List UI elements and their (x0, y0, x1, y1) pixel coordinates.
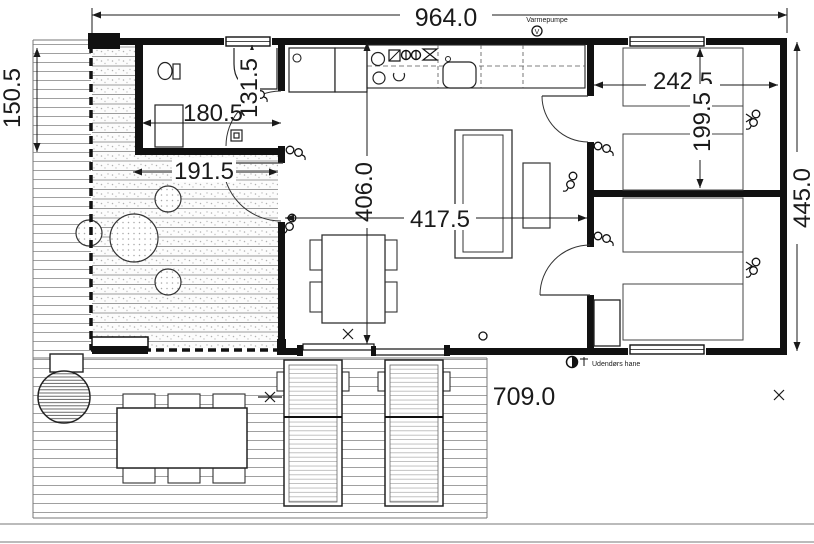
lounger1-tab-right (342, 372, 349, 391)
wall-bedroom-divider-upper (587, 45, 594, 96)
sliding-door-jamb-mid (371, 346, 376, 356)
dim-bedroom-height: 199.5 (689, 92, 716, 152)
terrace-plant-large (110, 214, 158, 262)
wall-bedroom-divider-lower (587, 295, 594, 348)
terrace-plant-top (155, 186, 181, 212)
kitchen (289, 45, 585, 92)
dim-left-height: 150.5 (0, 68, 26, 128)
outdoor-storage-box (50, 354, 83, 372)
dim-living-height: 406.0 (351, 162, 378, 222)
sun-lounger-1-slats (289, 365, 337, 502)
outlet-bedroom1-door (594, 142, 613, 156)
lamp-outlet-symbol (423, 49, 437, 60)
cooktop-burner-3 (393, 73, 404, 81)
outlet-bedroom2-right (746, 258, 760, 277)
patio-chair-top-1 (123, 394, 155, 409)
lounger2-tab-right (443, 372, 450, 391)
left-deck-strip (33, 40, 91, 352)
dining-chair-left-1 (310, 240, 322, 270)
bedroom1-door-arc (542, 96, 588, 142)
outlet-bedroom1-right (746, 110, 760, 129)
lounger2-tab-left (378, 372, 385, 391)
dim-terrace-width: 191.5 (174, 158, 234, 185)
dining-chair-right-2 (385, 282, 397, 312)
wall-right (780, 45, 787, 355)
fire-pit (38, 371, 90, 423)
sink-faucet (446, 57, 451, 62)
cooktop-burner-1 (372, 53, 385, 66)
dim-right-height: 445.0 (789, 168, 814, 228)
bedroom2-closet (594, 300, 620, 346)
lounger1-tab-left (277, 372, 284, 391)
patio-table (117, 408, 247, 468)
patio-chair-bottom-3 (213, 468, 245, 483)
dim-deck-width: 709.0 (493, 383, 556, 411)
dining-chair-left-2 (310, 282, 322, 312)
wall-bathroom-left (135, 45, 143, 155)
terrace-bench-base (92, 346, 148, 354)
heat-pump-label: Varmepumpe (526, 17, 568, 24)
wall-entry-upper (278, 45, 285, 91)
dim-bathroom-width: 180.5 (183, 100, 243, 127)
dining-chair-right-1 (385, 240, 397, 270)
kitchen-tall-unit-2 (335, 48, 367, 92)
sliding-door-jamb-left (297, 345, 303, 356)
outlet-living-bottom (479, 332, 487, 340)
outdoor-tap-label: Udendørs hane (592, 361, 640, 368)
sliding-door-panel-1 (303, 344, 374, 350)
sliding-door-panel-2 (375, 349, 445, 355)
floor-plan-canvas: 964.0 150.5 131.5 180.5 191.5 406.0 417.… (0, 0, 814, 544)
bed2-mattress-bottom (623, 284, 743, 340)
sun-lounger-2-slats (390, 365, 438, 502)
dim-living-width: 417.5 (410, 206, 470, 233)
tap-glyph (580, 357, 588, 366)
bed2-mattress-top (623, 198, 743, 252)
terrace-plant-left (76, 220, 102, 246)
wall-bathroom-bottom (135, 148, 285, 155)
outlet-entry (286, 146, 305, 160)
bedroom2-door-arc (540, 245, 590, 295)
wall-bedroom-divider-mid (587, 142, 594, 247)
cooktop-burner-2 (373, 72, 385, 84)
sofa-cushions (463, 135, 503, 252)
patio-chair-bottom-1 (123, 468, 155, 483)
wall-between-bedrooms (594, 190, 780, 197)
bed1-mattress-bottom (623, 134, 743, 190)
floor-plan-drawing: 964.0 150.5 131.5 180.5 191.5 406.0 417.… (0, 0, 814, 544)
patio-chair-top-3 (213, 394, 245, 409)
dining-table (322, 235, 385, 323)
wall-entry-lower (278, 222, 285, 348)
sliding-door-jamb-right (444, 345, 450, 356)
kitchen-sink-basin (443, 62, 476, 88)
patio-chair-bottom-2 (168, 468, 200, 483)
dim-top-width: 964.0 (415, 4, 478, 32)
heat-pump-symbol: V (535, 29, 540, 36)
terrace-plant-bottom (155, 269, 181, 295)
outlet-living-wall (563, 172, 577, 191)
patio-chair-top-2 (168, 394, 200, 409)
outlet-bedroom2-door (594, 232, 613, 246)
